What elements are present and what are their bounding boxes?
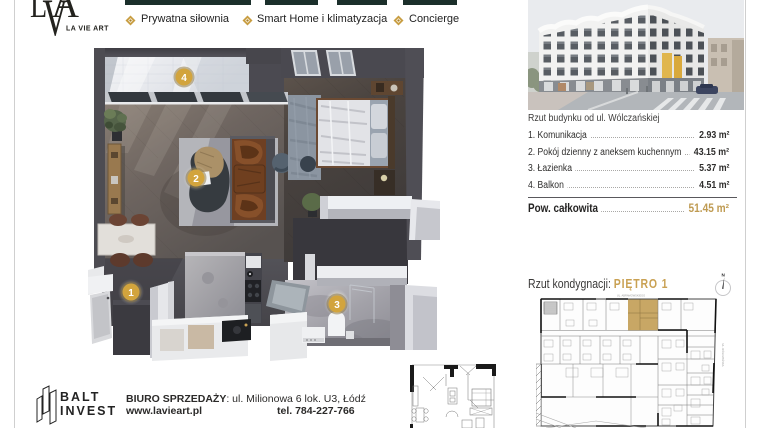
svg-text:UL. ABRAMOWSKIEGO: UL. ABRAMOWSKIEGO (617, 294, 645, 298)
svg-text:2: 2 (193, 174, 199, 185)
svg-text:1: 1 (128, 288, 134, 299)
svg-text:4: 4 (181, 73, 187, 84)
svg-text:V: V (43, 0, 68, 45)
svg-text:BALT: BALT (60, 390, 100, 404)
svg-text:3: 3 (334, 300, 340, 311)
svg-text:UL. WÓLCZAŃSKA: UL. WÓLCZAŃSKA (721, 344, 726, 367)
svg-text:N: N (722, 273, 726, 278)
svg-text:INVEST: INVEST (60, 404, 117, 418)
svg-text:LA VIE ART: LA VIE ART (66, 26, 109, 33)
